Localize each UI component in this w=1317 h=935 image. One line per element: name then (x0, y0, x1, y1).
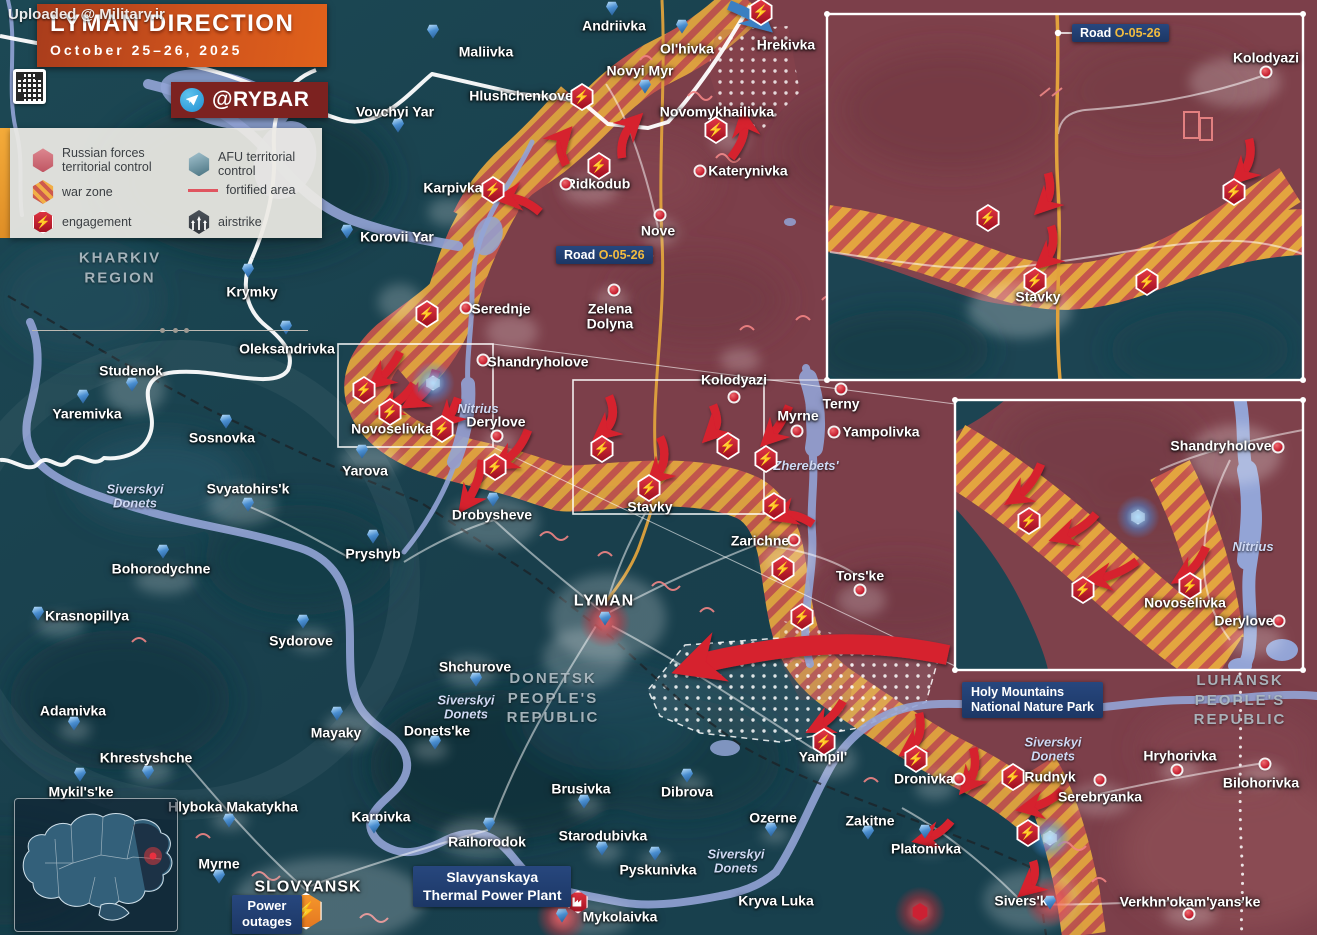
road-badge-code: O-05-26 (599, 248, 645, 262)
qr-code (13, 69, 46, 104)
power-outage-line1: Power (242, 898, 292, 914)
war-zone-swatch (32, 180, 54, 204)
road-badge-prefix: Road (564, 248, 595, 262)
fortified-area-swatch (188, 189, 218, 192)
ukraine-minimap (14, 798, 178, 932)
road-badge-prefix: Road (1080, 26, 1111, 40)
legend-fortified-label: fortified area (226, 183, 295, 197)
legend-airstrike-label: airstrike (218, 215, 262, 229)
power-plant-line1: Slavyanskaya (423, 869, 561, 887)
power-plant-line2: Thermal Power Plant (423, 887, 561, 905)
russian-control-swatch (32, 148, 54, 172)
road-badge-inset: Road O-05-26 (1072, 24, 1169, 42)
nature-park-line2: National Nature Park (971, 700, 1094, 715)
airstrike-icon (188, 210, 210, 234)
telegram-handle: @RYBAR (212, 88, 309, 112)
legend-accent-bar (0, 128, 10, 238)
nature-park-badge: Holy Mountains National Nature Park (962, 682, 1103, 718)
road-badge-code: O-05-26 (1115, 26, 1161, 40)
map-date: October 25–26, 2025 (50, 42, 327, 58)
map-canvas: AndriivkaMaliivkaOl'hivkaNovyi MyrHrekiv… (0, 0, 1317, 935)
legend-divider (32, 330, 308, 331)
attack-arrow (560, 136, 566, 165)
legend-russian-label: Russian forces territorial control (62, 146, 162, 175)
legend-warzone-label: war zone (62, 185, 113, 199)
legend-panel: Russian forces territorial control AFU t… (10, 128, 322, 238)
power-outage-badge: Power outages (232, 895, 302, 934)
power-outage-line2: outages (242, 914, 292, 930)
power-plant-badge: Slavyanskaya Thermal Power Plant (413, 866, 571, 907)
legend-engagement-label: engagement (62, 215, 132, 229)
road-badge-main: Road O-05-26 (556, 246, 653, 264)
telegram-banner: @RYBAR (171, 82, 328, 118)
nature-park-line1: Holy Mountains (971, 685, 1094, 700)
uploader-watermark: Uploaded @ Military.ir (8, 6, 165, 23)
afu-control-swatch (188, 152, 210, 176)
telegram-icon (180, 88, 204, 112)
engagement-icon: ⚡ (32, 210, 54, 234)
legend-afu-label: AFU territorial control (218, 150, 318, 179)
